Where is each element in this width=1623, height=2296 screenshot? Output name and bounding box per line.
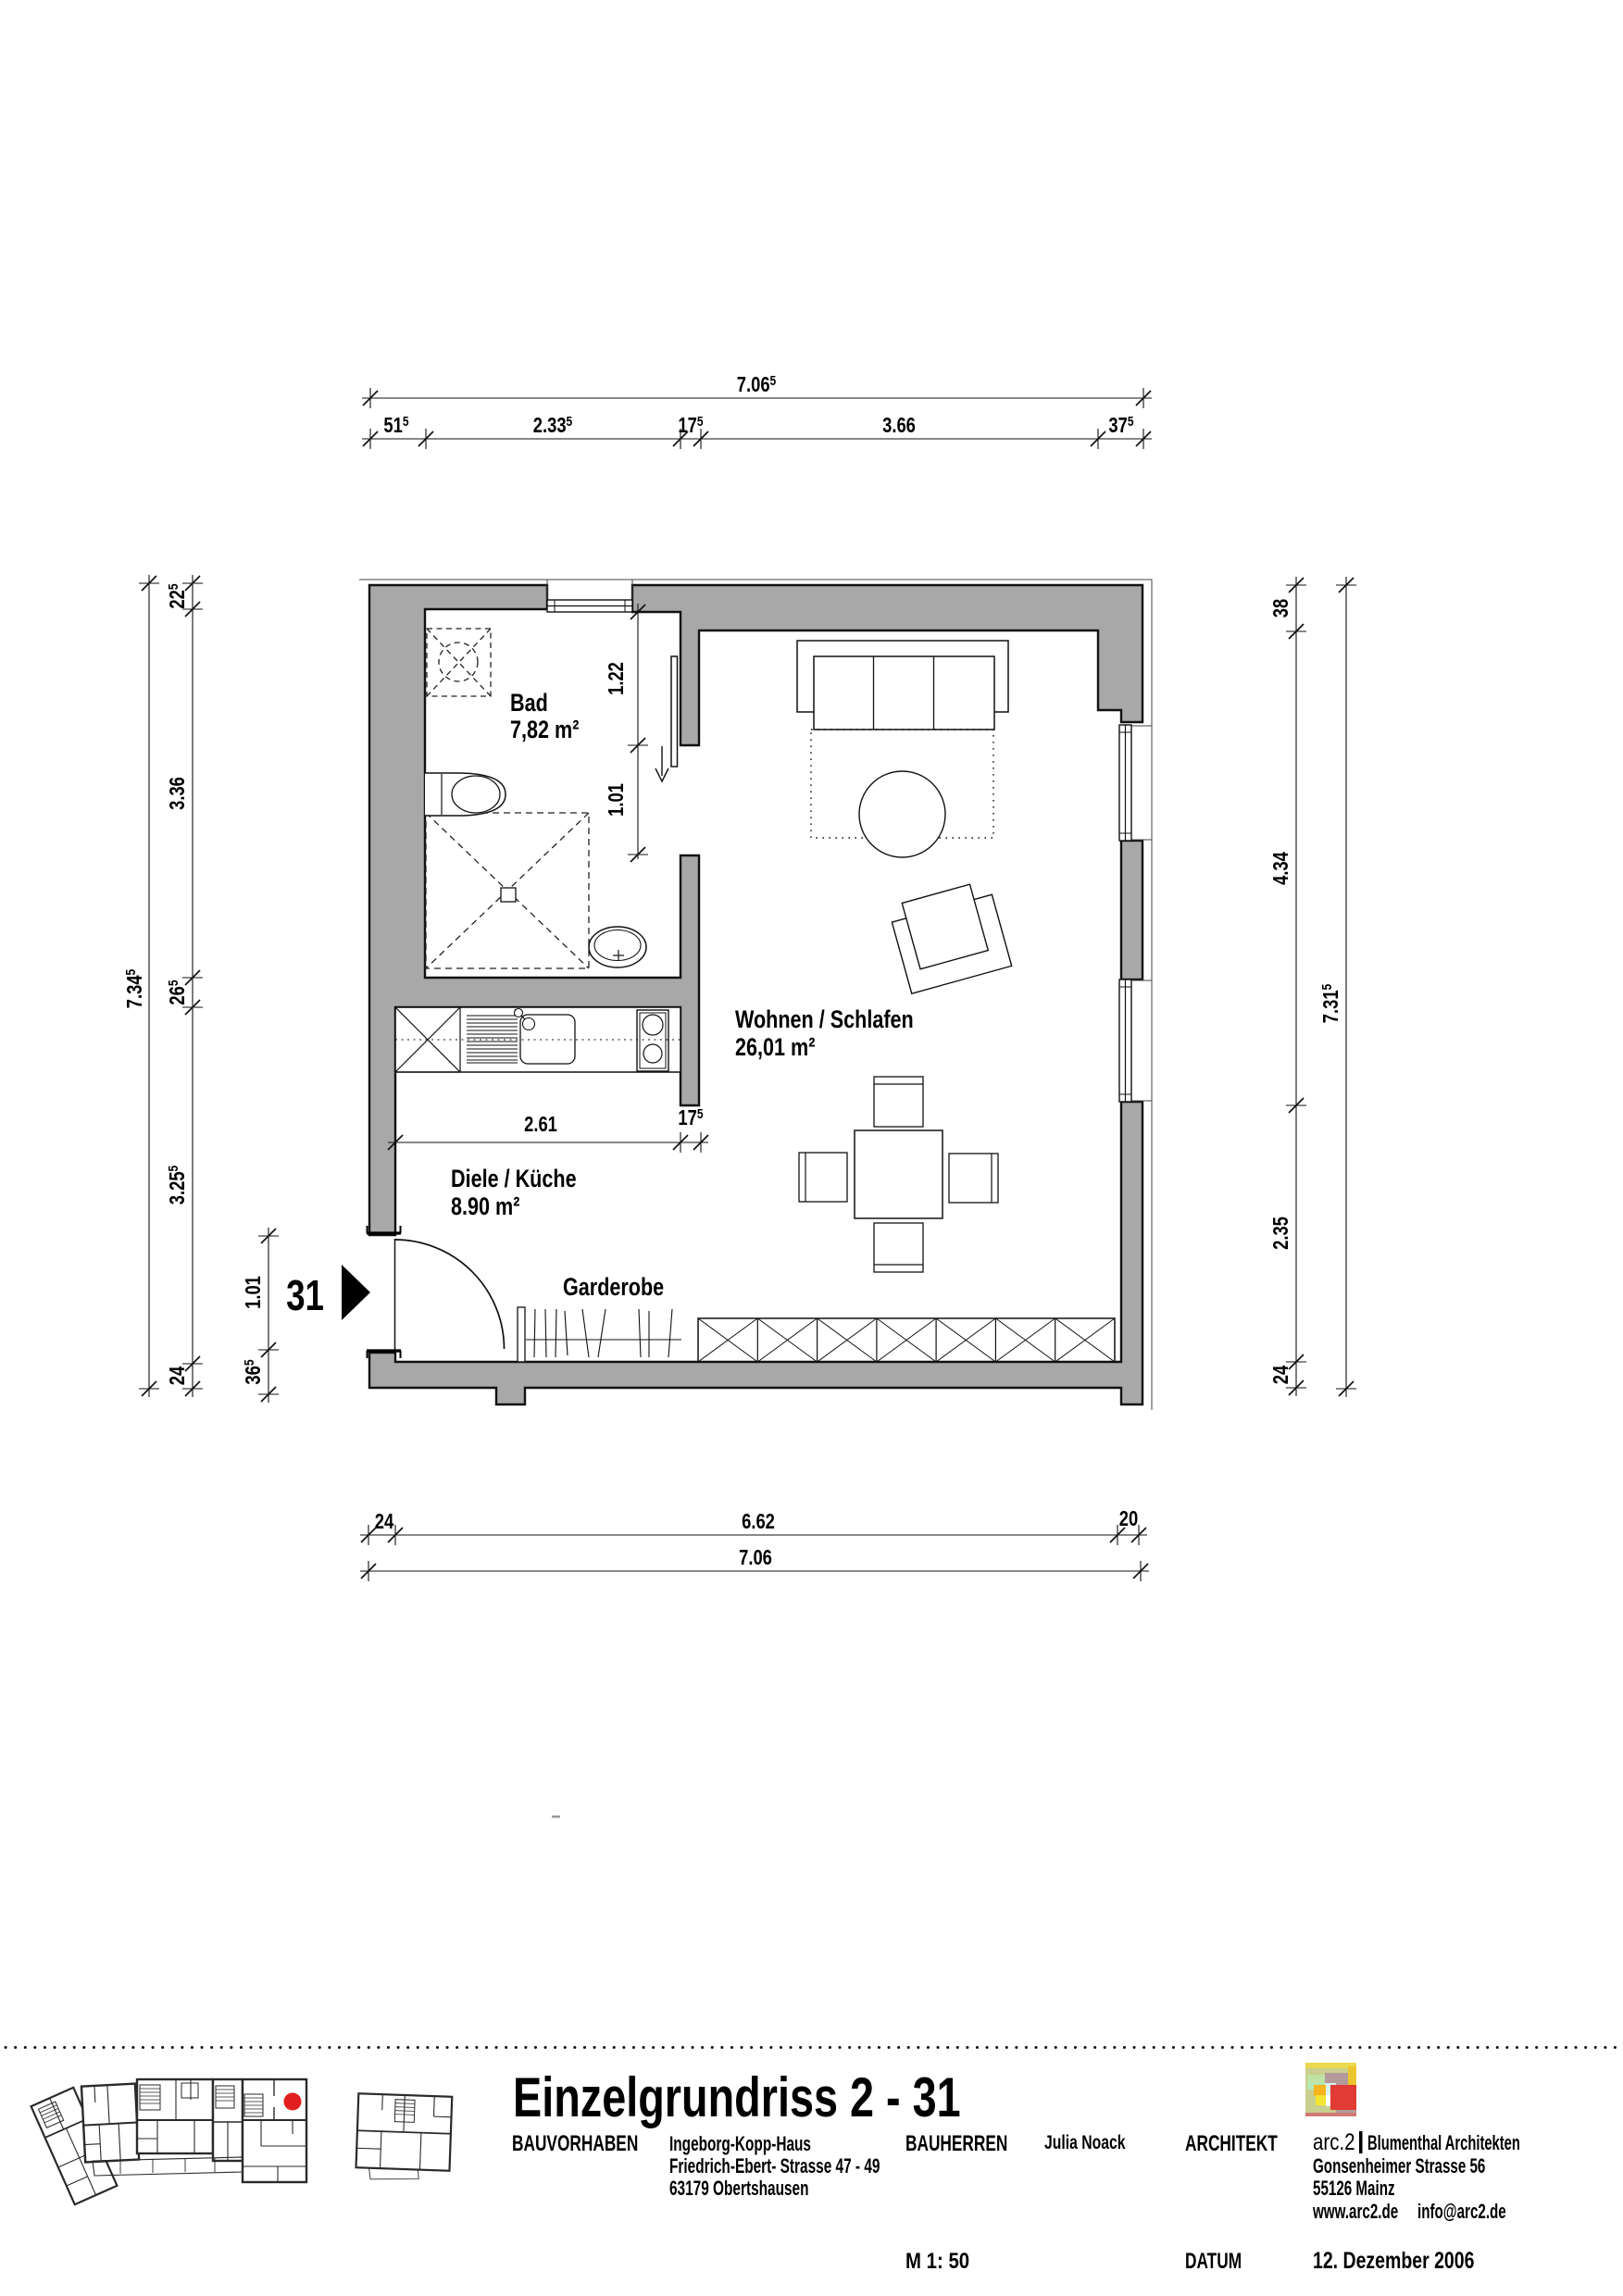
svg-text:1.01: 1.01 bbox=[242, 1276, 265, 1309]
svg-text:Einzelgrundriss 2 - 31: Einzelgrundriss 2 - 31 bbox=[513, 2066, 961, 2128]
svg-text:Friedrich-Ebert- Strasse 47 -: Friedrich-Ebert- Strasse 47 - 49 bbox=[669, 2155, 880, 2177]
svg-text:M 1: 50: M 1: 50 bbox=[905, 2248, 969, 2273]
svg-text:Bad: Bad bbox=[510, 690, 548, 717]
svg-text:BAUVORHABEN: BAUVORHABEN bbox=[512, 2131, 638, 2155]
svg-text:4.34: 4.34 bbox=[1269, 852, 1292, 885]
svg-text:Gonsenheimer Strasse 56: Gonsenheimer Strasse 56 bbox=[1313, 2155, 1485, 2177]
svg-text:DATUM: DATUM bbox=[1185, 2249, 1242, 2273]
svg-text:BAUHERREN: BAUHERREN bbox=[905, 2131, 1007, 2155]
svg-text:Blumenthal Architekten: Blumenthal Architekten bbox=[1367, 2131, 1520, 2154]
svg-text:arc.2: arc.2 bbox=[1313, 2128, 1355, 2154]
svg-text:24: 24 bbox=[375, 1510, 394, 1533]
svg-text:Garderobe: Garderobe bbox=[563, 1274, 664, 1302]
svg-text:7,82 m²: 7,82 m² bbox=[510, 717, 579, 744]
svg-text:6.62: 6.62 bbox=[742, 1510, 775, 1533]
svg-text:1.01: 1.01 bbox=[605, 783, 628, 817]
svg-text:31: 31 bbox=[286, 1271, 324, 1319]
svg-text:Julia Noack: Julia Noack bbox=[1044, 2131, 1126, 2153]
svg-text:2.35: 2.35 bbox=[1269, 1217, 1292, 1250]
svg-text:63179 Obertshausen: 63179 Obertshausen bbox=[669, 2177, 809, 2200]
svg-text:24: 24 bbox=[166, 1366, 189, 1385]
svg-text:info@arc2.de: info@arc2.de bbox=[1417, 2201, 1506, 2223]
svg-text:12. Dezember 2006: 12. Dezember 2006 bbox=[1313, 2248, 1474, 2274]
svg-text:38: 38 bbox=[1269, 599, 1292, 618]
svg-text:20: 20 bbox=[1119, 1507, 1138, 1530]
svg-text:3.36: 3.36 bbox=[166, 777, 189, 810]
svg-text:ARCHITEKT: ARCHITEKT bbox=[1185, 2131, 1278, 2155]
svg-text:7.06: 7.06 bbox=[739, 1546, 772, 1569]
svg-text:24: 24 bbox=[1269, 1365, 1292, 1384]
svg-text:8.90 m²: 8.90 m² bbox=[451, 1193, 519, 1221]
svg-text:Diele / Küche: Diele / Küche bbox=[451, 1166, 577, 1193]
svg-text:26,01 m²: 26,01 m² bbox=[735, 1034, 815, 1062]
svg-text:Wohnen / Schlafen: Wohnen / Schlafen bbox=[735, 1006, 914, 1034]
svg-text:www.arc2.de: www.arc2.de bbox=[1312, 2201, 1398, 2223]
svg-text:Ingeborg-Kopp-Haus: Ingeborg-Kopp-Haus bbox=[669, 2133, 811, 2155]
svg-text:3.66: 3.66 bbox=[882, 414, 916, 437]
svg-text:2.61: 2.61 bbox=[524, 1113, 557, 1136]
svg-text:1.22: 1.22 bbox=[605, 662, 628, 695]
svg-text:55126 Mainz: 55126 Mainz bbox=[1313, 2177, 1395, 2200]
